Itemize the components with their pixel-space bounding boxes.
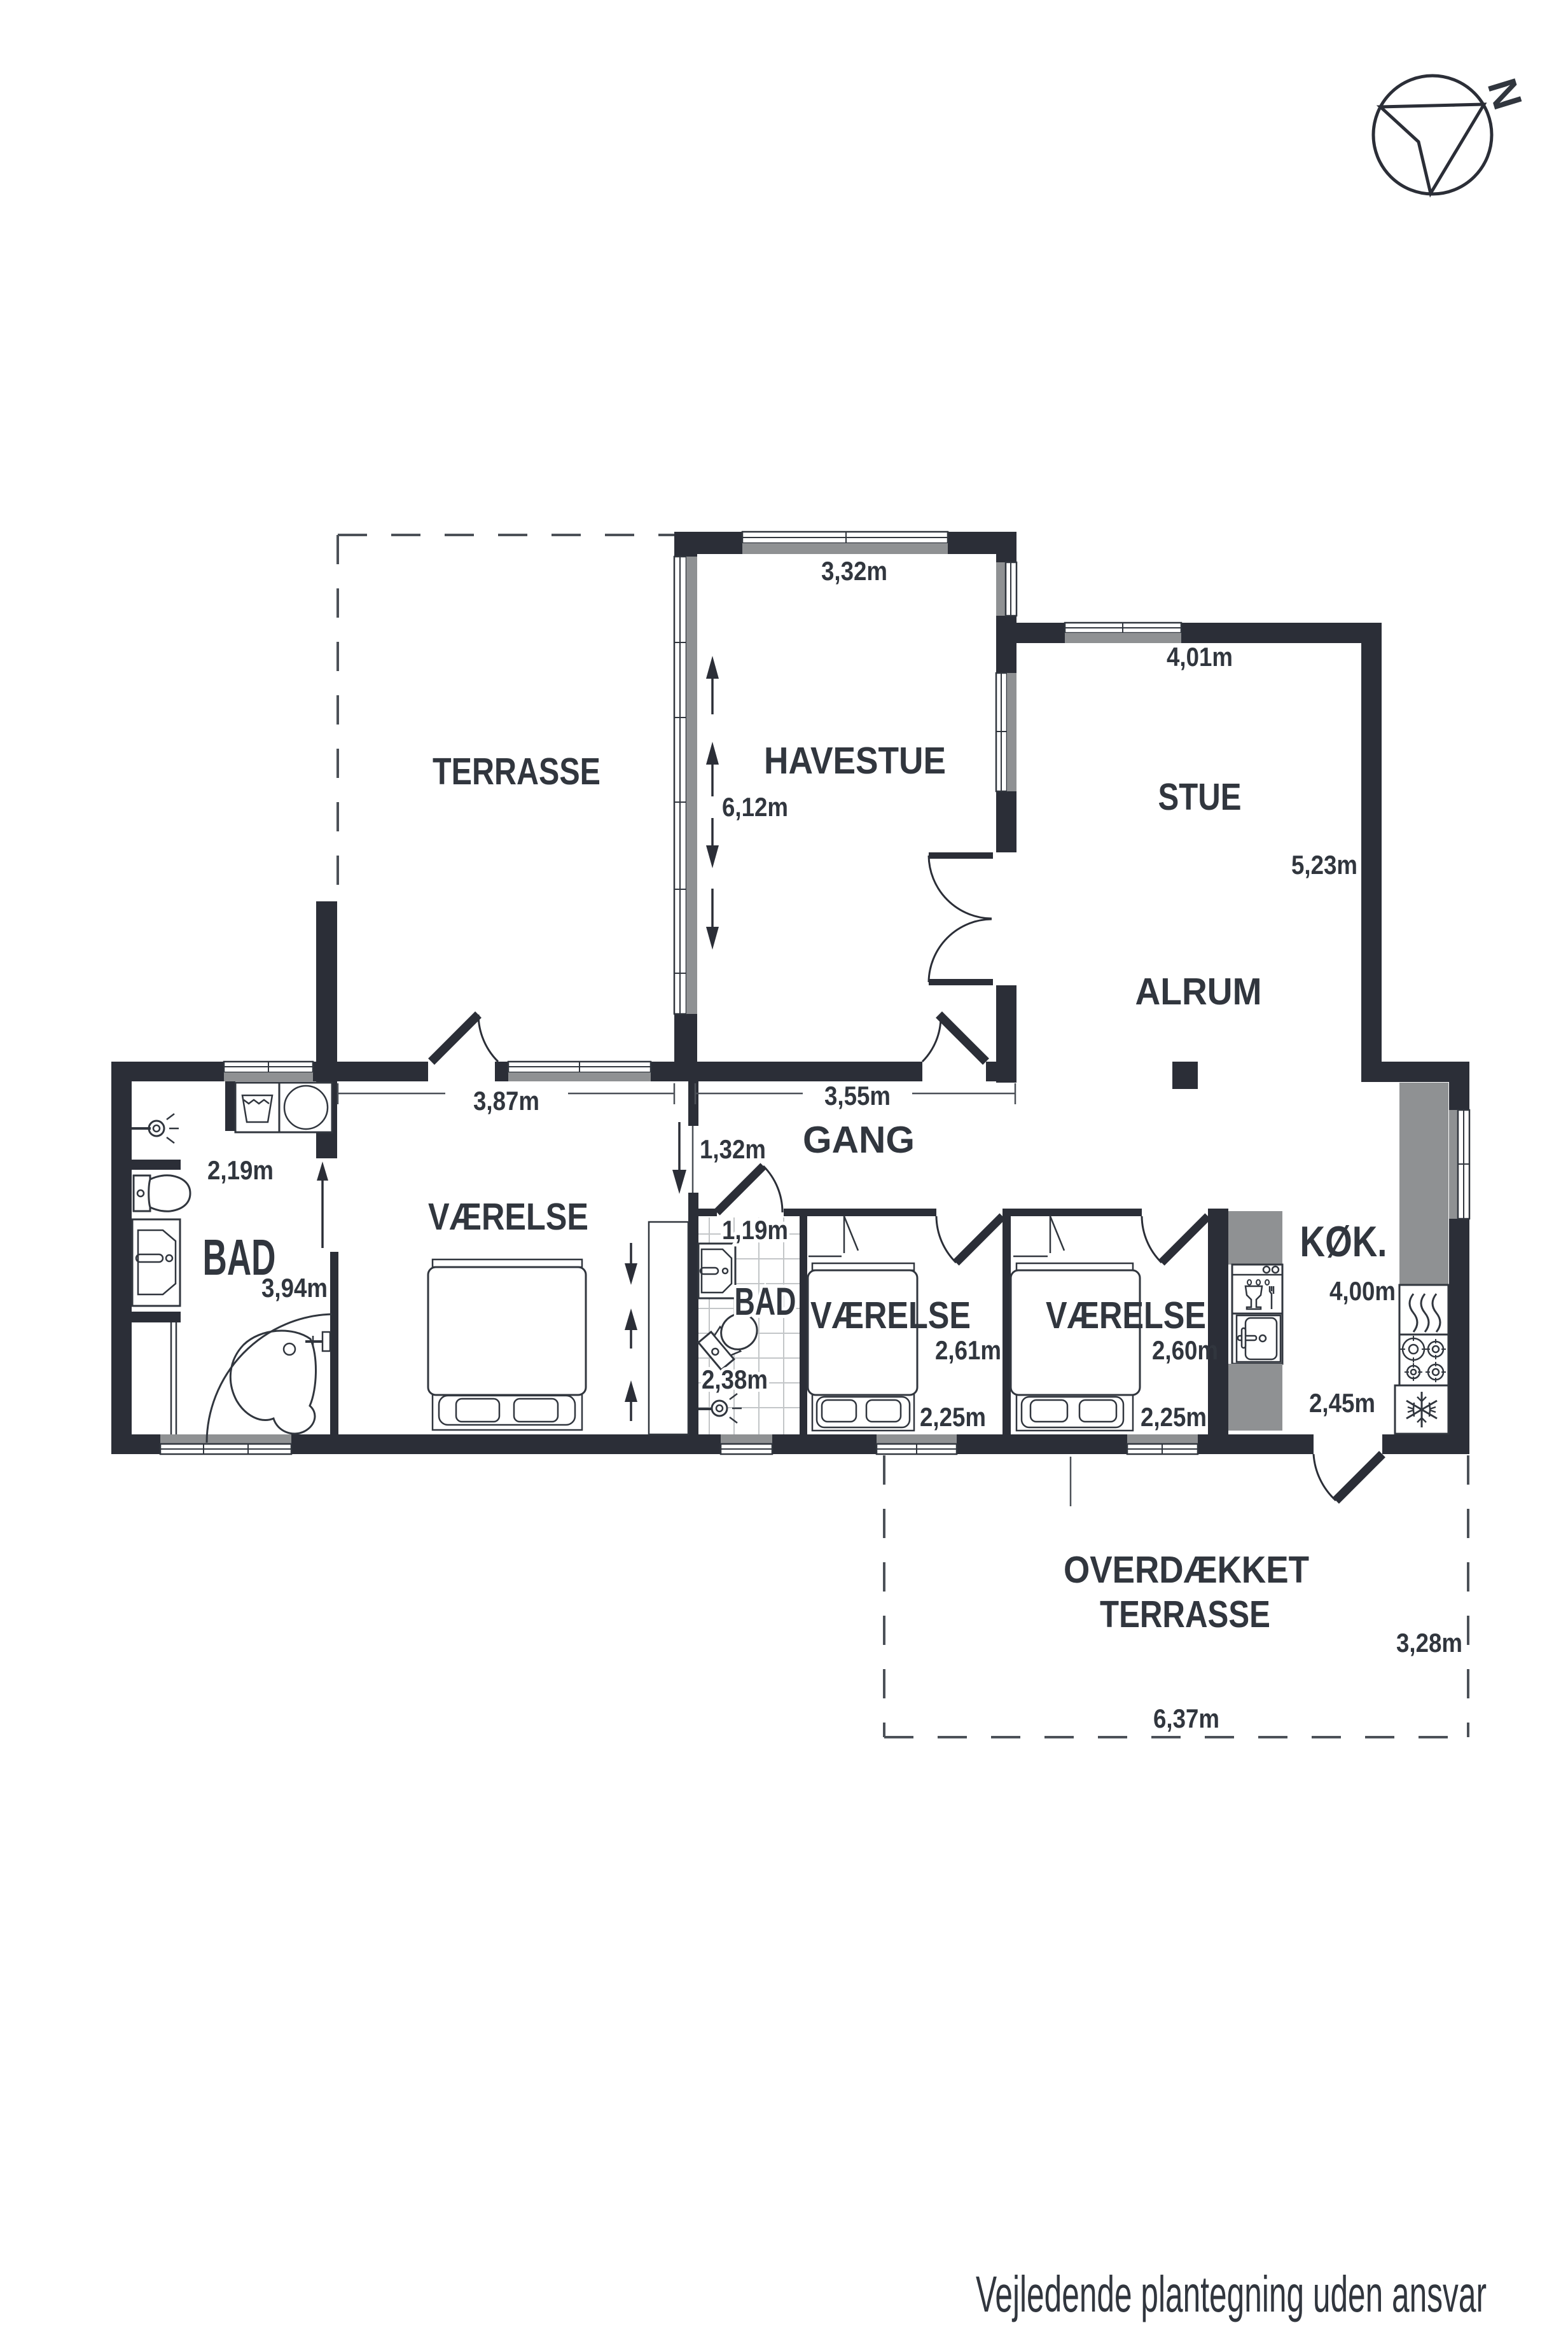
svg-text:2,45m: 2,45m (1309, 1388, 1375, 1418)
svg-text:OVERDÆKKET: OVERDÆKKET (1064, 1549, 1309, 1591)
svg-text:2,19m: 2,19m (207, 1155, 274, 1185)
svg-text:6,12m: 6,12m (722, 792, 788, 822)
svg-text:3,32m: 3,32m (821, 556, 887, 586)
svg-text:TERRASSE: TERRASSE (1100, 1593, 1270, 1635)
svg-text:HAVESTUE: HAVESTUE (764, 740, 946, 782)
svg-text:5,23m: 5,23m (1291, 850, 1357, 880)
svg-text:6,37m: 6,37m (1153, 1703, 1219, 1733)
svg-text:BAD: BAD (735, 1280, 796, 1323)
svg-text:Vejledende plantegning uden an: Vejledende plantegning uden ansvar (976, 2266, 1487, 2322)
svg-text:3,87m: 3,87m (473, 1086, 539, 1116)
svg-text:1,19m: 1,19m (722, 1215, 788, 1245)
svg-text:2,25m: 2,25m (1141, 1402, 1207, 1432)
svg-text:VÆRELSE: VÆRELSE (810, 1294, 971, 1336)
svg-text:3,28m: 3,28m (1396, 1628, 1462, 1658)
svg-text:4,00m: 4,00m (1329, 1276, 1396, 1306)
svg-text:2,25m: 2,25m (920, 1402, 986, 1432)
svg-text:STUE: STUE (1158, 776, 1242, 818)
svg-text:3,55m: 3,55m (824, 1081, 891, 1111)
svg-text:2,61m: 2,61m (935, 1335, 1001, 1365)
svg-text:1,32m: 1,32m (700, 1134, 766, 1164)
svg-text:GANG: GANG (803, 1119, 915, 1161)
svg-text:2,60m: 2,60m (1152, 1335, 1218, 1365)
svg-text:TERRASSE: TERRASSE (433, 751, 600, 793)
svg-text:4,01m: 4,01m (1167, 642, 1233, 672)
svg-text:ALRUM: ALRUM (1135, 971, 1262, 1013)
svg-text:KØK.: KØK. (1300, 1217, 1387, 1266)
svg-text:3,94m: 3,94m (261, 1273, 328, 1303)
svg-text:VÆRELSE: VÆRELSE (1046, 1294, 1206, 1336)
svg-text:2,38m: 2,38m (702, 1364, 768, 1394)
svg-text:VÆRELSE: VÆRELSE (428, 1196, 588, 1238)
